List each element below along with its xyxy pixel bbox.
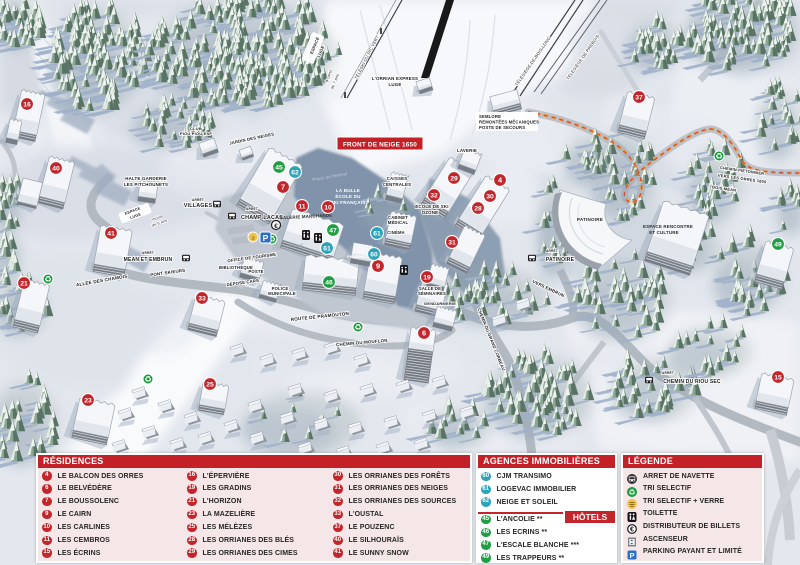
- svg-text:VILLAGES: VILLAGES: [184, 203, 213, 209]
- svg-text:ARRÊT: ARRÊT: [246, 206, 258, 211]
- svg-text:MEAN ET EMBRUN: MEAN ET EMBRUN: [124, 257, 173, 263]
- svg-text:GENDARMERIE: GENDARMERIE: [424, 301, 456, 306]
- svg-text:L'ORRIAN EXPRESS: L'ORRIAN EXPRESS: [372, 76, 418, 81]
- svg-text:CENTRALES: CENTRALES: [383, 182, 412, 187]
- svg-text:LAVERIE: LAVERIE: [457, 148, 477, 153]
- svg-text:Émile Hodoul: Émile Hodoul: [390, 247, 415, 252]
- svg-text:SÉMINAIRES: SÉMINAIRES: [418, 291, 446, 296]
- svg-text:LUGE: LUGE: [389, 82, 402, 87]
- svg-text:POSTE DE SECOURS: POSTE DE SECOURS: [479, 125, 525, 130]
- svg-text:MÉDICAL: MÉDICAL: [388, 220, 409, 225]
- svg-text:ÉCOLE DE SKI: ÉCOLE DE SKI: [415, 204, 448, 209]
- svg-text:Place: Place: [397, 243, 408, 247]
- svg-text:HALTE GARDERIE: HALTE GARDERIE: [125, 176, 167, 181]
- svg-text:POSTE: POSTE: [248, 269, 263, 274]
- svg-text:CAISSES: CAISSES: [387, 176, 408, 181]
- svg-text:MUNICIPALE: MUNICIPALE: [268, 291, 296, 296]
- svg-text:CINÉMA: CINÉMA: [387, 230, 405, 235]
- svg-text:PATINOIRE: PATINOIRE: [577, 217, 603, 222]
- svg-text:LA BULLE: LA BULLE: [336, 188, 360, 193]
- svg-text:LES PITCHOUNETS: LES PITCHOUNETS: [124, 182, 168, 187]
- svg-text:OZONE: OZONE: [422, 210, 439, 215]
- svg-text:SKI FRANÇAIS: SKI FRANÇAIS: [330, 200, 365, 205]
- svg-text:PIOU PIOU ESF: PIOU PIOU ESF: [180, 131, 213, 136]
- svg-text:FRONT DE NEIGE 1650: FRONT DE NEIGE 1650: [343, 142, 417, 149]
- svg-text:ÉCOLE DU: ÉCOLE DU: [335, 192, 361, 199]
- svg-text:SEMLORE: SEMLORE: [479, 114, 501, 119]
- svg-text:REMONTÉES MÉCANIQUES: REMONTÉES MÉCANIQUES: [479, 120, 539, 125]
- svg-text:ARRÊT: ARRÊT: [142, 250, 154, 255]
- svg-text:ARRÊT: ARRÊT: [192, 197, 204, 202]
